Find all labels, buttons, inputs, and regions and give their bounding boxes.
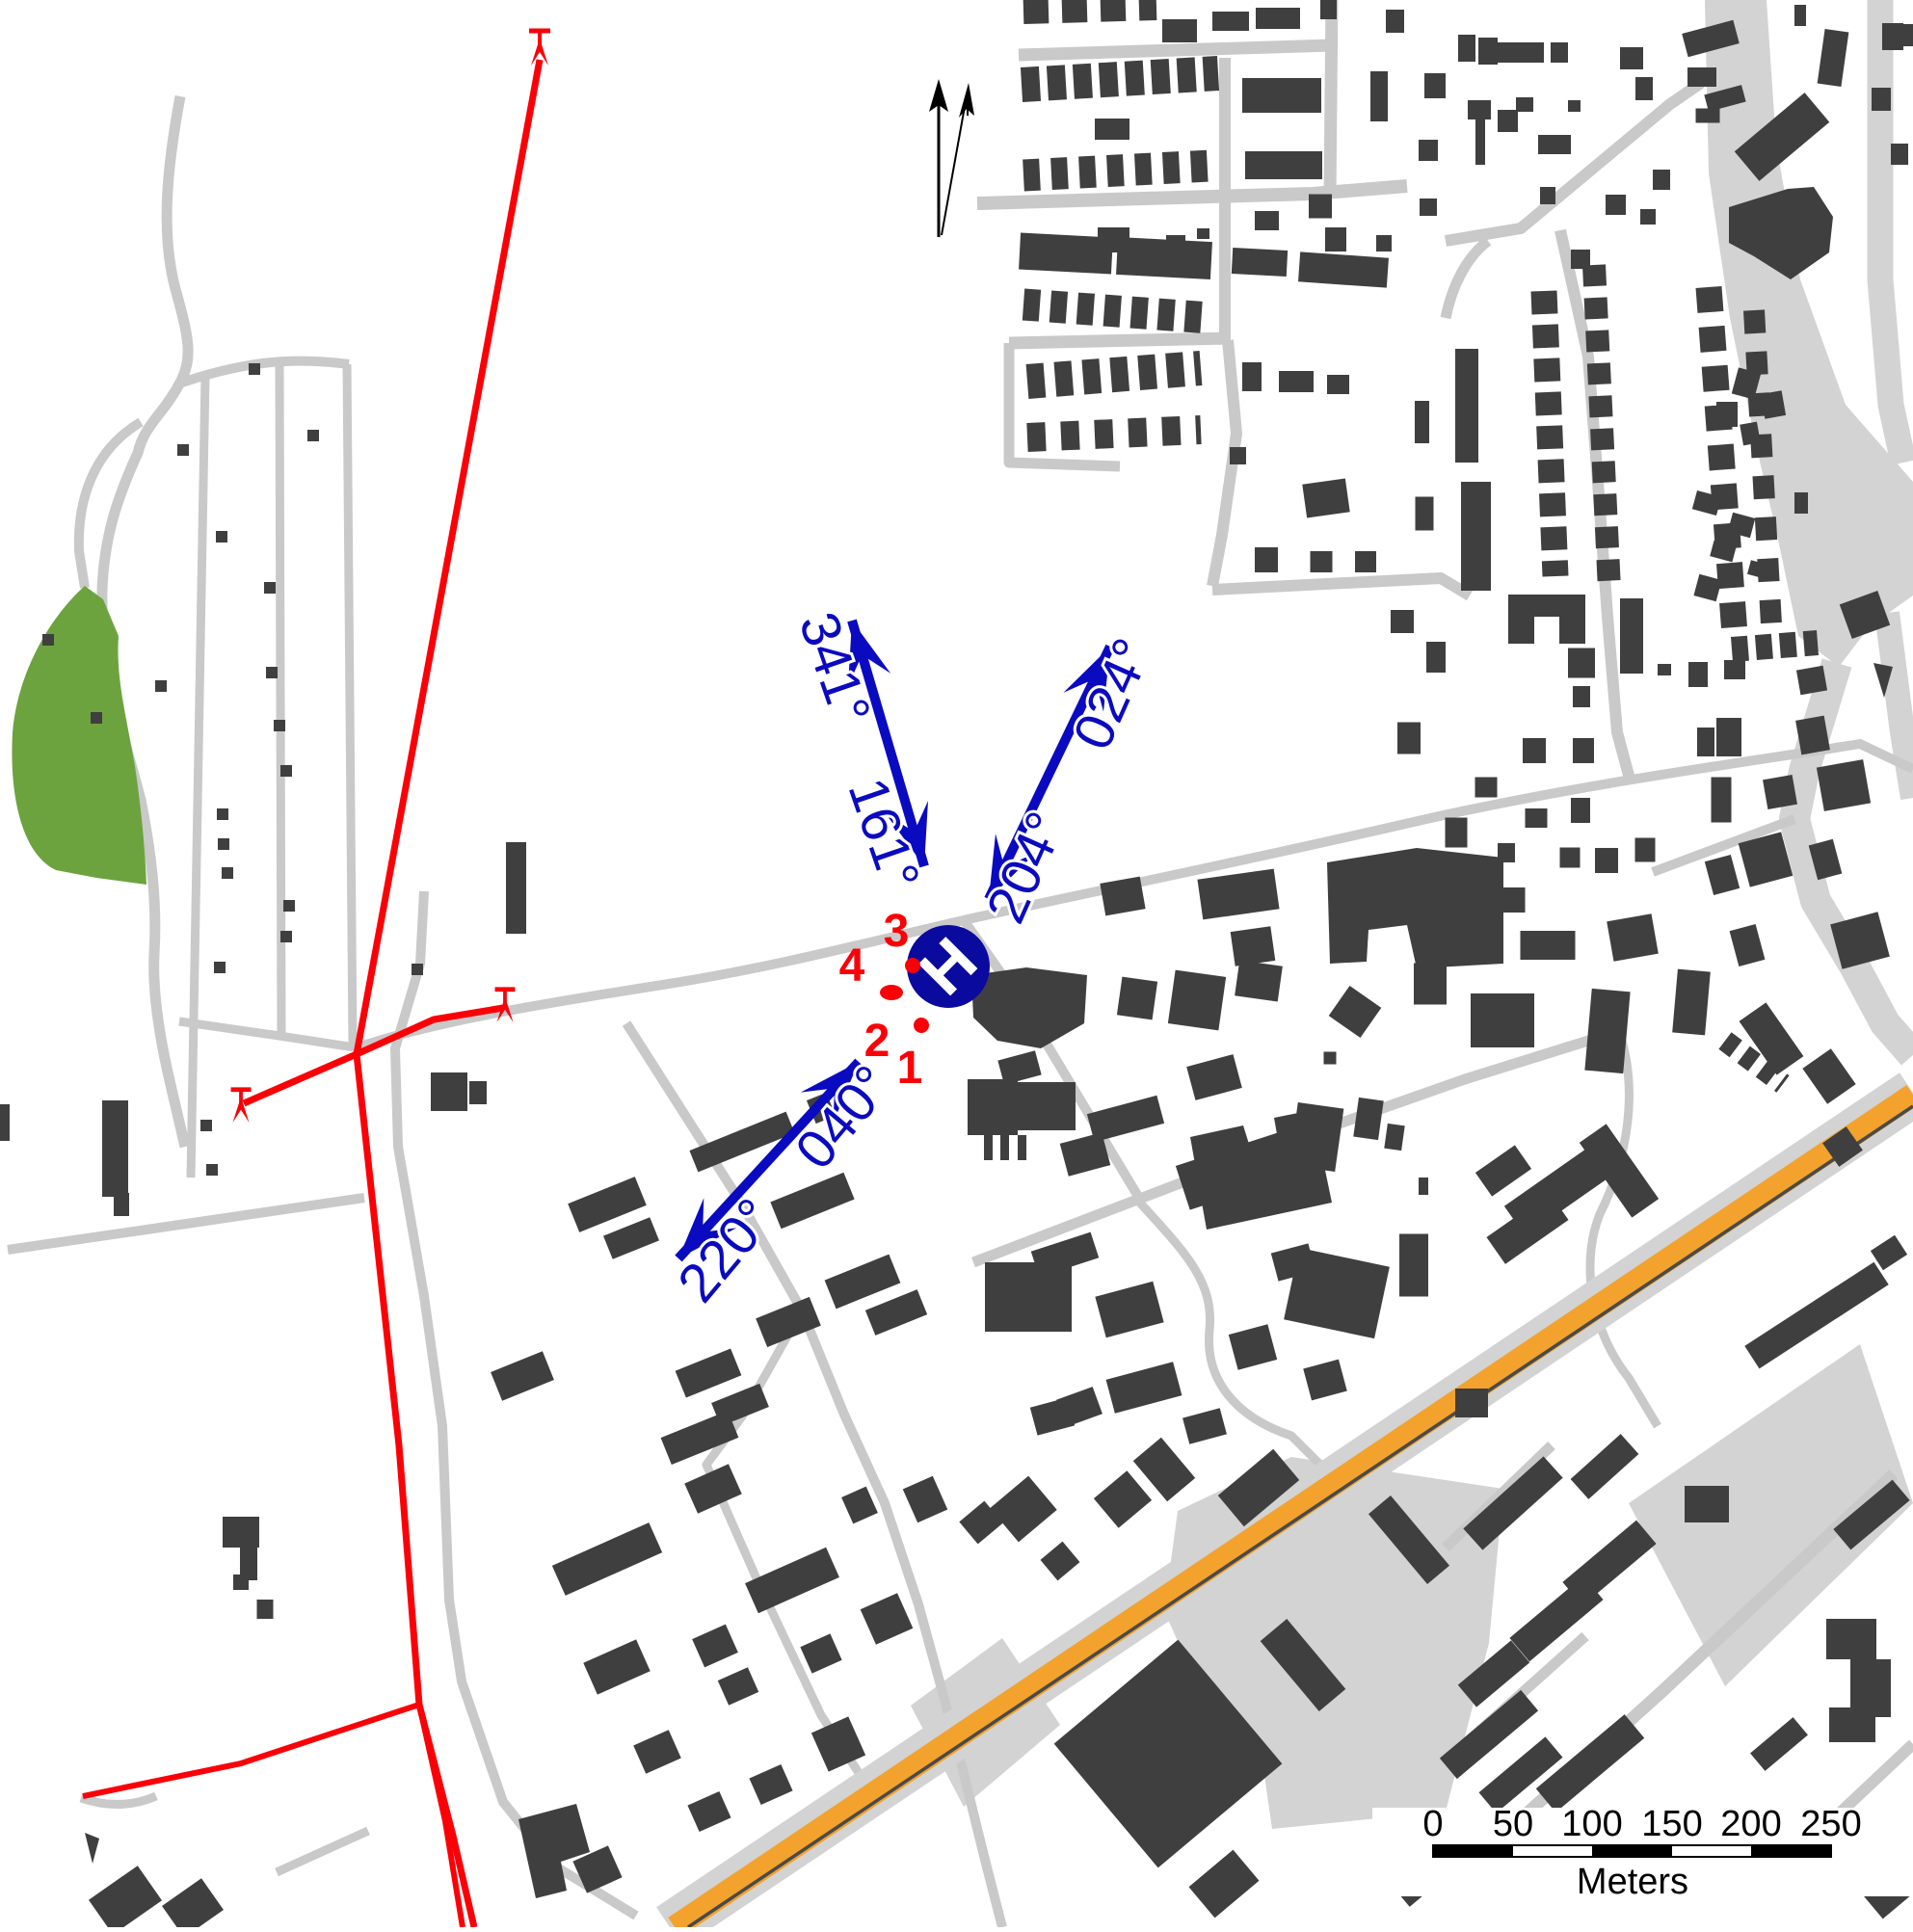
svg-text:1: 1 xyxy=(897,1043,923,1094)
svg-text:100: 100 xyxy=(1561,1804,1622,1844)
svg-text:4: 4 xyxy=(839,940,865,992)
svg-text:Meters: Meters xyxy=(1577,1862,1688,1902)
svg-text:50: 50 xyxy=(1493,1804,1533,1844)
svg-text:3: 3 xyxy=(884,906,910,957)
svg-text:2: 2 xyxy=(864,1016,890,1067)
svg-text:0: 0 xyxy=(1422,1804,1443,1844)
svg-text:200: 200 xyxy=(1720,1804,1781,1844)
svg-text:150: 150 xyxy=(1641,1804,1702,1844)
svg-text:250: 250 xyxy=(1800,1804,1861,1844)
